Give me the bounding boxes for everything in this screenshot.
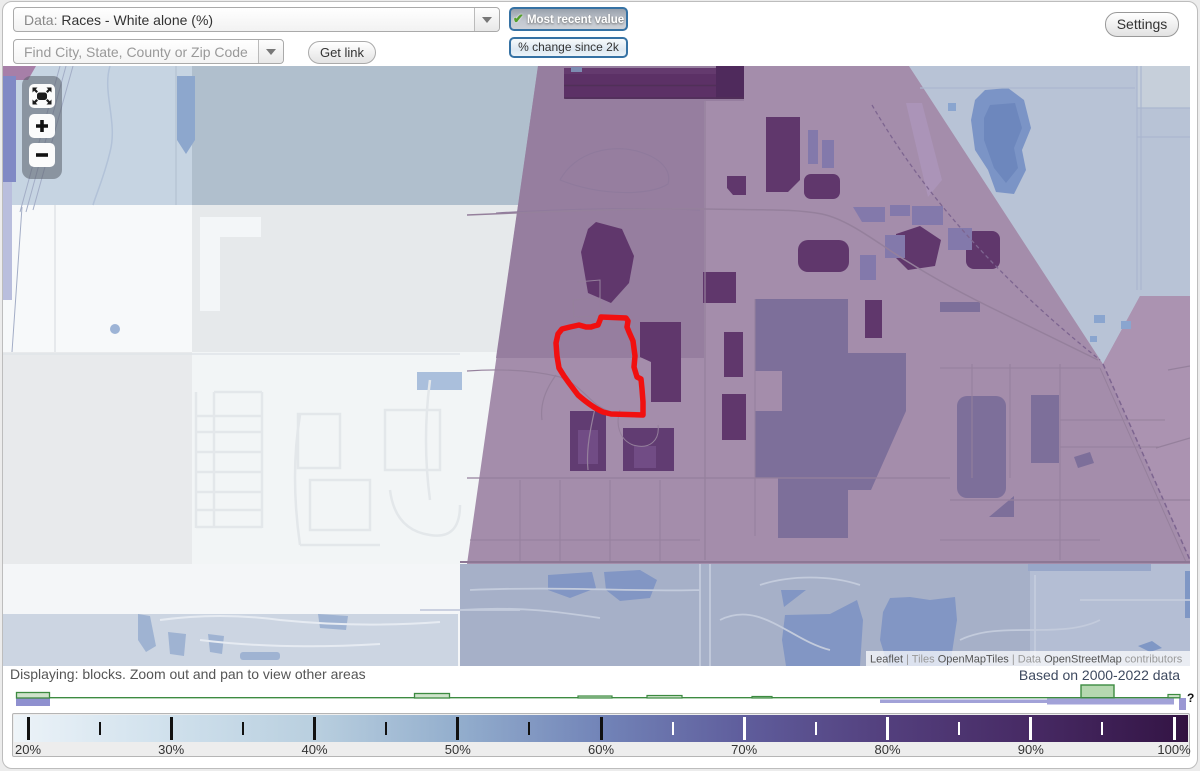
svg-text:?: ? <box>1187 691 1194 705</box>
svg-text:Leaflet | Tiles OpenMapTiles |: Leaflet | Tiles OpenMapTiles | Data Open… <box>870 654 1183 666</box>
